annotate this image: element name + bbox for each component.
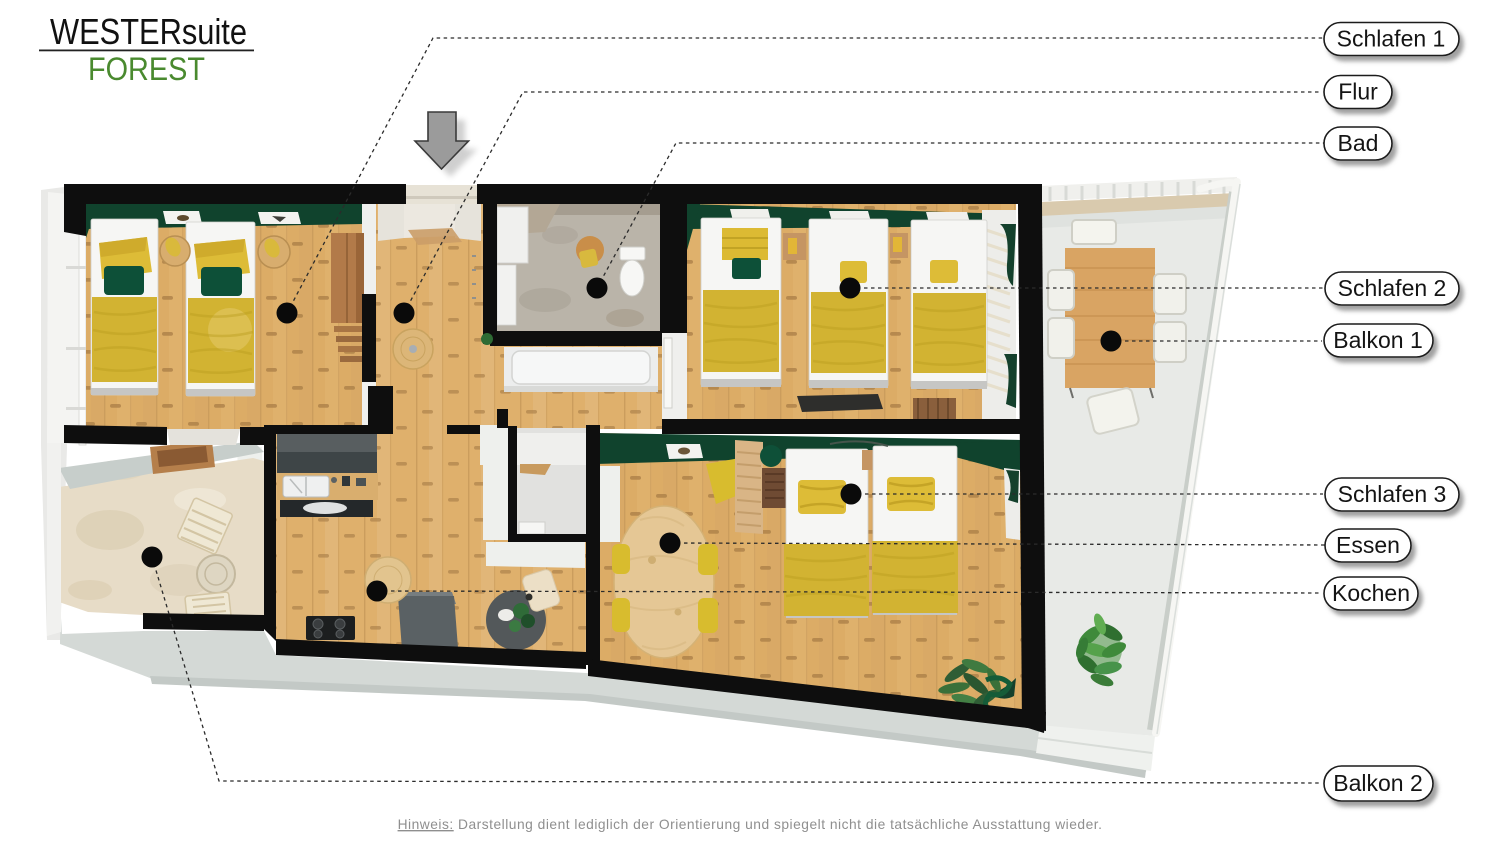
svg-text:Balkon 2: Balkon 2 [1333, 770, 1423, 796]
svg-text:Essen: Essen [1336, 532, 1400, 558]
svg-text:Schlafen 2: Schlafen 2 [1338, 275, 1447, 301]
svg-text:Schlafen 3: Schlafen 3 [1338, 481, 1447, 507]
svg-text:FOREST: FOREST [88, 51, 205, 87]
svg-text:Flur: Flur [1338, 79, 1378, 105]
svg-text:WESTERsuite: WESTERsuite [50, 11, 247, 52]
svg-text:Kochen: Kochen [1332, 580, 1410, 606]
svg-text:Hinweis: Darstellung dient led: Hinweis: Darstellung dient lediglich der… [398, 817, 1103, 832]
svg-text:Schlafen 1: Schlafen 1 [1337, 26, 1446, 52]
svg-text:Balkon 1: Balkon 1 [1333, 327, 1423, 353]
svg-text:Bad: Bad [1338, 130, 1379, 156]
